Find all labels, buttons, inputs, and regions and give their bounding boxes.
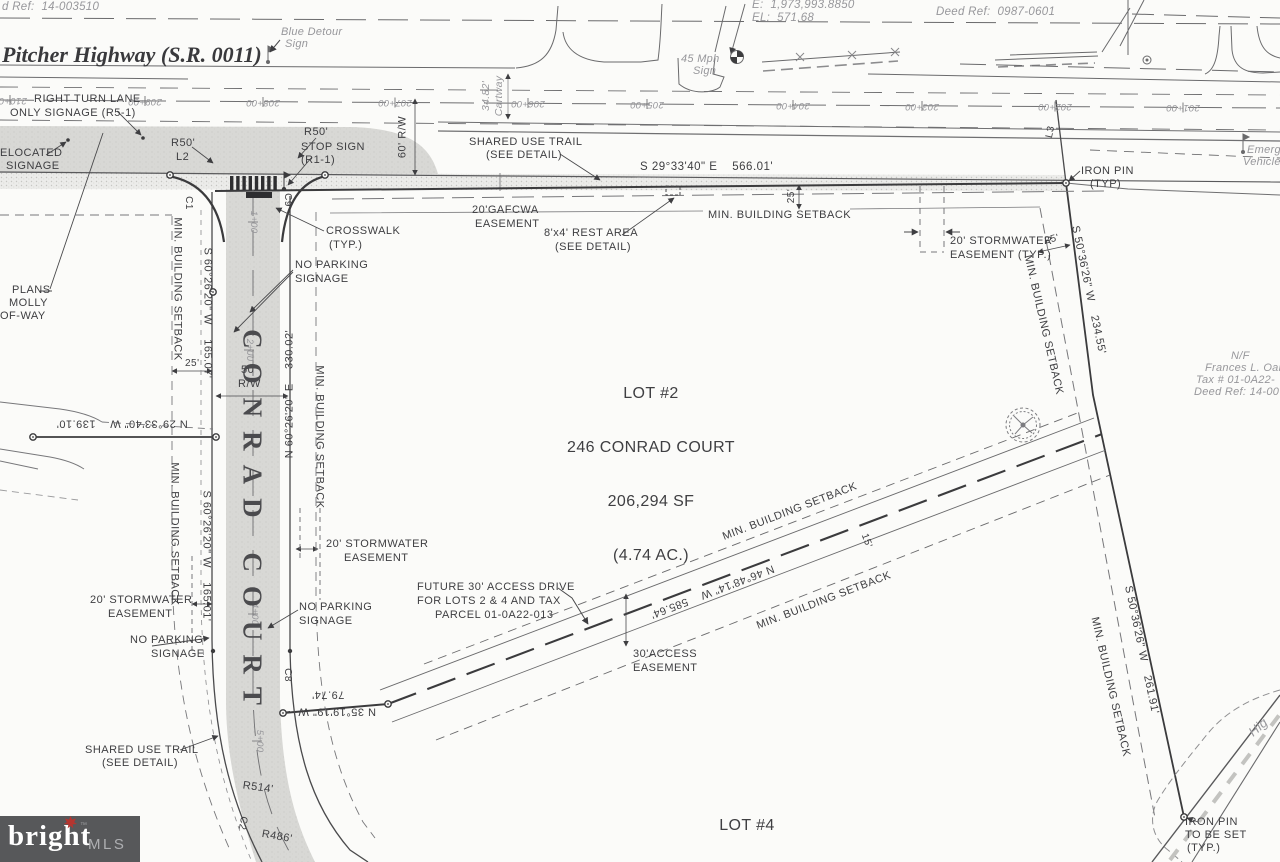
setback-dim-25-west: 25': [185, 359, 200, 369]
crosswalk-note: CROSSWALK: [326, 226, 400, 237]
access-easement-note: 30'ACCESS: [633, 649, 697, 660]
logo-brand-text: bright: [8, 820, 91, 853]
station-204: 204+00: [776, 100, 810, 110]
gafcwa-easement2: EASEMENT: [475, 219, 540, 230]
station-202: 202+00: [1038, 101, 1072, 111]
future-access-note: FUTURE 30' ACCESS DRIVE: [417, 582, 575, 593]
plans-note: PLANS: [12, 285, 51, 296]
lot2-block: LOT #2 246 CONRAD COURT 206,294 SF (4.74…: [567, 349, 735, 601]
gafcwa-easement: 20'GAFCWA: [472, 205, 539, 216]
iron-pin-ne2: (TYP): [1090, 179, 1121, 190]
setback-access-north: MIN. BUILDING SETBACK: [721, 481, 859, 543]
setback-se: MIN. BUILDING SETBACK: [1089, 616, 1132, 758]
stormwater-ne2: EASEMENT (TYP.): [950, 250, 1051, 261]
bearing-lot-line: N 35°19'19" W: [298, 706, 376, 717]
dim-15: 15': [859, 532, 873, 549]
setback-north: MIN. BUILDING SETBACK: [708, 210, 851, 221]
setback-dim-25-ne: 25': [1044, 233, 1061, 246]
station-208: 208+00: [246, 97, 280, 107]
stormwater-ne: 20' STORMWATER: [950, 236, 1052, 247]
iron-pin-ne: IRON PIN: [1081, 166, 1134, 177]
lot2-number: LOT #2: [567, 385, 735, 403]
stop-sign-note2: (R1-1): [301, 155, 335, 166]
right-turn-lane-note2: ONLY SIGNAGE (R5-1): [10, 108, 136, 119]
deed-ref-north: Deed Ref: 0987-0601: [936, 7, 1055, 19]
mph-sign-label2: Sign: [693, 66, 716, 77]
plans-note2: MOLLY: [9, 298, 48, 309]
stormwater-west2: EASEMENT: [108, 609, 173, 620]
blue-detour-sign-label2: Sign: [285, 39, 308, 50]
adjoiner-tax: Tax # 01-0A22-: [1196, 375, 1275, 386]
logo-trademark: ™: [80, 822, 87, 829]
ref-number: d Ref: 14-003510: [2, 2, 99, 14]
station-210: 210+00: [0, 95, 27, 105]
adjoiner-nf: N/F: [1231, 351, 1250, 362]
station-5: 5+00: [254, 730, 264, 753]
stormwater-east: 20' STORMWATER: [326, 539, 428, 550]
shared-use-trail-west: SHARED USE TRAIL: [85, 745, 199, 756]
bearing-west-lot: N 29°33'40" W 139.10': [56, 418, 188, 429]
lot4-number: LOT #4: [663, 817, 831, 835]
radius-r50-east: R50': [304, 127, 328, 138]
setback-west-upper: MIN. BUILDING SETBACK: [172, 217, 183, 360]
bearing-west-lower: S 60°26'20" W 165.01': [201, 491, 212, 622]
mph-sign-label: 45 Mph: [681, 54, 720, 65]
line-l3: L3: [1045, 125, 1057, 139]
station-207: 207+00: [378, 97, 412, 107]
right-turn-lane-note: RIGHT TURN LANE: [34, 94, 141, 105]
blue-detour-sign-label: Blue Detour: [281, 27, 342, 38]
curve-c2: C2: [236, 815, 248, 830]
station-206: 206+00: [511, 98, 545, 108]
setback-dim-25-north: 25': [787, 189, 797, 204]
radius-r50-west: R50': [171, 138, 195, 149]
iron-pin-se: IRON PIN: [1185, 817, 1238, 828]
future-access-note3: PARCEL 01-0A22-013: [435, 610, 553, 621]
cartway-label: Cartway: [494, 76, 505, 117]
curve-c1: C1: [183, 196, 193, 210]
dim-79: 79.74': [312, 689, 345, 700]
future-access-note2: FOR LOTS 2 & 4 AND TAX: [417, 596, 561, 607]
rest-area-note: 8'x4' REST AREA: [544, 228, 638, 239]
no-parking-upper2: SIGNAGE: [295, 274, 349, 285]
shared-use-trail-north2: (SEE DETAIL): [486, 150, 562, 161]
bearing-east-lower: S 50°36'26" W 261.91': [1122, 585, 1160, 715]
bearing-west-upper: S 60°26'20" W 165.07': [202, 248, 213, 379]
stormwater-east2: EASEMENT: [344, 553, 409, 564]
radius-r486: R486': [261, 829, 293, 845]
setback-conrad-east: MIN. BUILDING SETBACK: [314, 365, 325, 508]
lot2-area-sf: 206,294 SF: [567, 493, 735, 511]
relocated-signage-note: ELOCATED: [0, 148, 62, 159]
no-parking-west2: SIGNAGE: [151, 649, 205, 660]
no-parking-east: NO PARKING: [299, 602, 372, 613]
setback-access-south: MIN. BUILDING SETBACK: [755, 570, 893, 632]
curve-c9: C9: [282, 193, 292, 207]
crosswalk-note2: (TYP.): [329, 240, 362, 251]
station-1: 1+00: [248, 211, 258, 234]
stormwater-west: 20' STORMWATER: [90, 595, 192, 606]
iron-pin-se3: (TYP.): [1187, 843, 1220, 854]
lot4-block: LOT #4 340 CONRAD COURT 232,713 SF (5.34…: [663, 781, 831, 862]
emergency-vehicle-label: Emerge: [1247, 145, 1280, 156]
coord-east: E: 1,973,993.8850: [752, 0, 855, 12]
relocated-signage-note2: SIGNAGE: [6, 161, 60, 172]
bearing-conrad-east: N 60°26'20" E 330.02': [285, 330, 296, 458]
station-201: 201+00: [1166, 102, 1200, 112]
curve-c8: C8: [282, 668, 292, 682]
row-60: 60' R/W: [398, 116, 409, 158]
adjoiner-name: Frances L. Oak: [1205, 363, 1280, 374]
bearing-north: S 29°33'40" E 566.01': [640, 162, 773, 174]
station-203: 203+00: [905, 101, 939, 111]
coord-elevation: EL: 571.68: [752, 13, 814, 25]
street-name-label: CONRAD COURT: [237, 329, 268, 719]
station-205: 205+00: [630, 99, 664, 109]
shared-use-trail-west2: (SEE DETAIL): [102, 758, 178, 769]
plans-note3: OF-WAY: [0, 311, 46, 322]
lot2-address: 246 CONRAD COURT: [567, 439, 735, 457]
access-easement-note2: EASEMENT: [633, 663, 698, 674]
no-parking-west: NO PARKING: [130, 635, 203, 646]
radius-r514: R514': [242, 780, 274, 795]
highway-title: Pitcher Highway (S.R. 0011): [2, 42, 262, 68]
no-parking-upper: NO PARKING: [295, 260, 368, 271]
setback-ne: MIN. BUILDING SETBACK: [1022, 254, 1065, 396]
highway-se-label: Hig: [1246, 715, 1270, 738]
lot2-area-ac: (4.74 AC.): [567, 547, 735, 565]
logo-mls-text: MLS: [88, 836, 126, 853]
setback-west-lower: MIN. BUILDING SETBACK: [169, 462, 180, 605]
shared-use-trail-north: SHARED USE TRAIL: [469, 137, 583, 148]
rest-area-note2: (SEE DETAIL): [555, 242, 631, 253]
iron-pin-se2: TO BE SET: [1185, 830, 1247, 841]
survey-plat-page: d Ref: 14-003510Blue DetourSignE: 1,973,…: [0, 0, 1280, 862]
cartway-width: 34.82': [481, 81, 492, 111]
line-l2: L2: [176, 152, 189, 163]
emergency-vehicle-label2: Vehicle: [1243, 157, 1280, 168]
no-parking-east2: SIGNAGE: [299, 616, 353, 627]
bright-mls-logo: bright ™ MLS: [0, 816, 140, 862]
stop-sign-note: STOP SIGN: [301, 142, 365, 153]
adjoiner-deed: Deed Ref: 14-00: [1194, 387, 1279, 398]
bearing-east-upper: S 50°36'26" W 234.55': [1069, 225, 1107, 355]
